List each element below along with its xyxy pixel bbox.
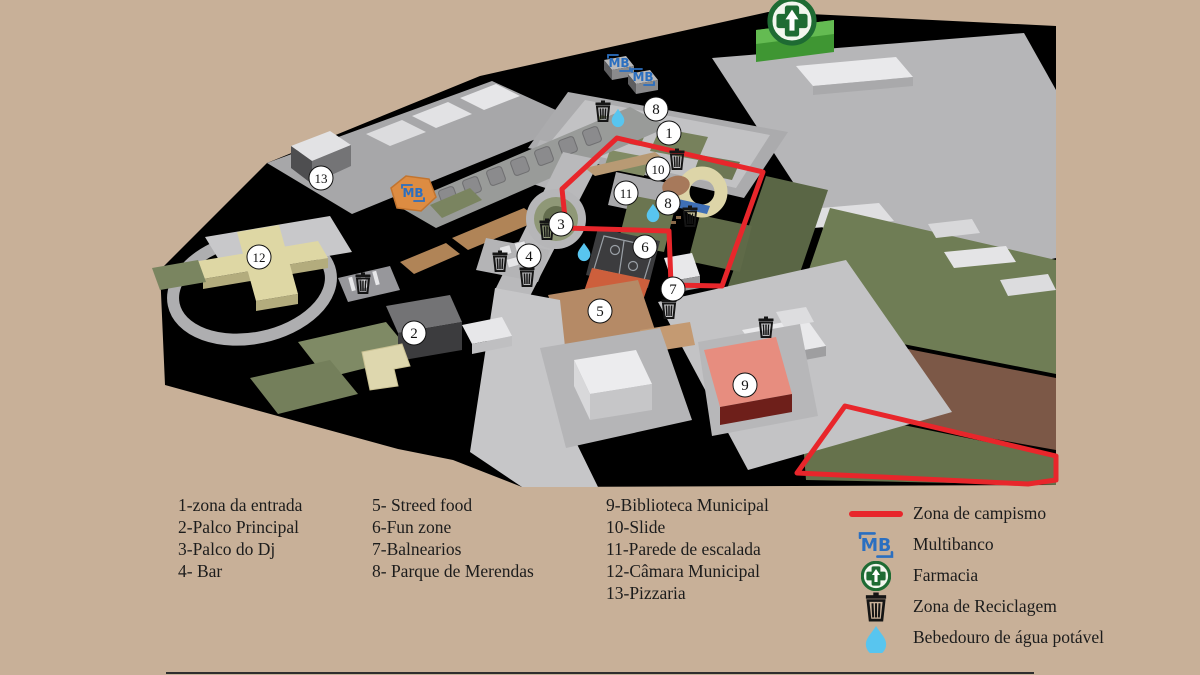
legend-symbol-icon-box [845, 591, 907, 623]
legend-symbol-label: Farmacia [913, 565, 978, 586]
marker-number: 9 [741, 378, 749, 394]
legend-item: 5- Streed food [372, 494, 534, 516]
page: MB [0, 0, 1200, 675]
legend: 1-zona da entrada2-Palco Principal3-Palc… [0, 492, 1200, 675]
legend-column-1: 1-zona da entrada2-Palco Principal3-Palc… [178, 494, 302, 582]
map-marker-2: 2 [402, 321, 426, 345]
marker-number: 2 [410, 326, 418, 342]
mb-icon [402, 185, 424, 201]
site-map-image: MB [0, 0, 1200, 492]
marker-number: 8 [664, 196, 672, 212]
map-marker-6: 6 [633, 235, 657, 259]
bottom-divider [166, 672, 1034, 674]
trash-icon [596, 101, 611, 122]
legend-item: 10-Slide [606, 516, 769, 538]
legend-symbol-icon-box [845, 511, 907, 517]
marker-number: 12 [253, 250, 266, 265]
legend-symbol-label: Zona de campismo [913, 503, 1046, 524]
water-drop-icon [864, 623, 888, 653]
camping-line-icon [849, 511, 903, 517]
site-map-svg: MB [0, 0, 1200, 492]
map-marker-5: 5 [588, 299, 612, 323]
map-marker-10: 10 [646, 157, 670, 181]
legend-column-3: 9-Biblioteca Municipal10-Slide11-Parede … [606, 494, 769, 604]
trash-icon [759, 317, 774, 338]
mb-icon [632, 69, 654, 85]
legend-item: 6-Fun zone [372, 516, 534, 538]
mb-icon [608, 55, 630, 71]
legend-symbol-label: Zona de Reciclagem [913, 596, 1057, 617]
map-marker-12: 12 [247, 245, 271, 269]
legend-symbols: Zona de campismoMultibancoFarmaciaZona d… [845, 498, 1104, 653]
legend-item: 11-Parede de escalada [606, 538, 769, 560]
multibanco-icon [858, 530, 894, 560]
legend-column-2: 5- Streed food6-Fun zone7-Balnearios8- P… [372, 494, 534, 582]
trash-icon [683, 206, 698, 227]
legend-symbol-row-redline: Zona de campismo [845, 498, 1104, 529]
legend-item: 3-Palco do Dj [178, 538, 302, 560]
map-marker-7: 7 [661, 277, 685, 301]
legend-item: 8- Parque de Merendas [372, 560, 534, 582]
legend-item: 12-Câmara Municipal [606, 560, 769, 582]
map-marker-3: 3 [549, 212, 573, 236]
legend-item: 2-Palco Principal [178, 516, 302, 538]
legend-item: 4- Bar [178, 560, 302, 582]
trash-icon [520, 266, 535, 287]
legend-item: 9-Biblioteca Municipal [606, 494, 769, 516]
terrain [152, 12, 1056, 487]
legend-item: 1-zona da entrada [178, 494, 302, 516]
marker-number: 13 [315, 171, 328, 186]
trash-icon [356, 273, 371, 294]
legend-symbol-row-trash: Zona de Reciclagem [845, 591, 1104, 622]
trash-icon [670, 149, 685, 170]
map-marker-13: 13 [309, 166, 333, 190]
marker-number: 4 [525, 249, 533, 265]
map-marker-4: 4 [517, 244, 541, 268]
marker-number: 3 [557, 217, 565, 233]
map-marker-8: 8 [656, 191, 680, 215]
map-marker-11: 11 [614, 181, 638, 205]
legend-symbol-label: Multibanco [913, 534, 994, 555]
trash-icon [862, 591, 890, 623]
legend-item: 13-Pizzaria [606, 582, 769, 604]
legend-symbol-icon-box [845, 530, 907, 560]
map-marker-8: 8 [644, 97, 668, 121]
legend-symbol-icon-box [845, 561, 907, 591]
legend-symbol-row-pharmacy: Farmacia [845, 560, 1104, 591]
map-marker-1: 1 [657, 121, 681, 145]
marker-number: 5 [596, 304, 604, 320]
marker-number: 11 [620, 186, 633, 201]
marker-number: 7 [669, 282, 677, 298]
marker-number: 6 [641, 240, 649, 256]
marker-number: 8 [652, 102, 660, 118]
marker-number: 1 [665, 126, 673, 142]
pharmacy-icon [861, 561, 891, 591]
map-marker-9: 9 [733, 373, 757, 397]
trash-icon [493, 251, 508, 272]
legend-symbol-icon-box [845, 623, 907, 653]
legend-symbol-label: Bebedouro de água potável [913, 627, 1104, 648]
marker-number: 10 [652, 162, 665, 177]
legend-symbol-row-drop: Bebedouro de água potável [845, 622, 1104, 653]
pharmacy-icon [770, 0, 814, 43]
legend-item: 7-Balnearios [372, 538, 534, 560]
legend-symbol-row-mb: Multibanco [845, 529, 1104, 560]
